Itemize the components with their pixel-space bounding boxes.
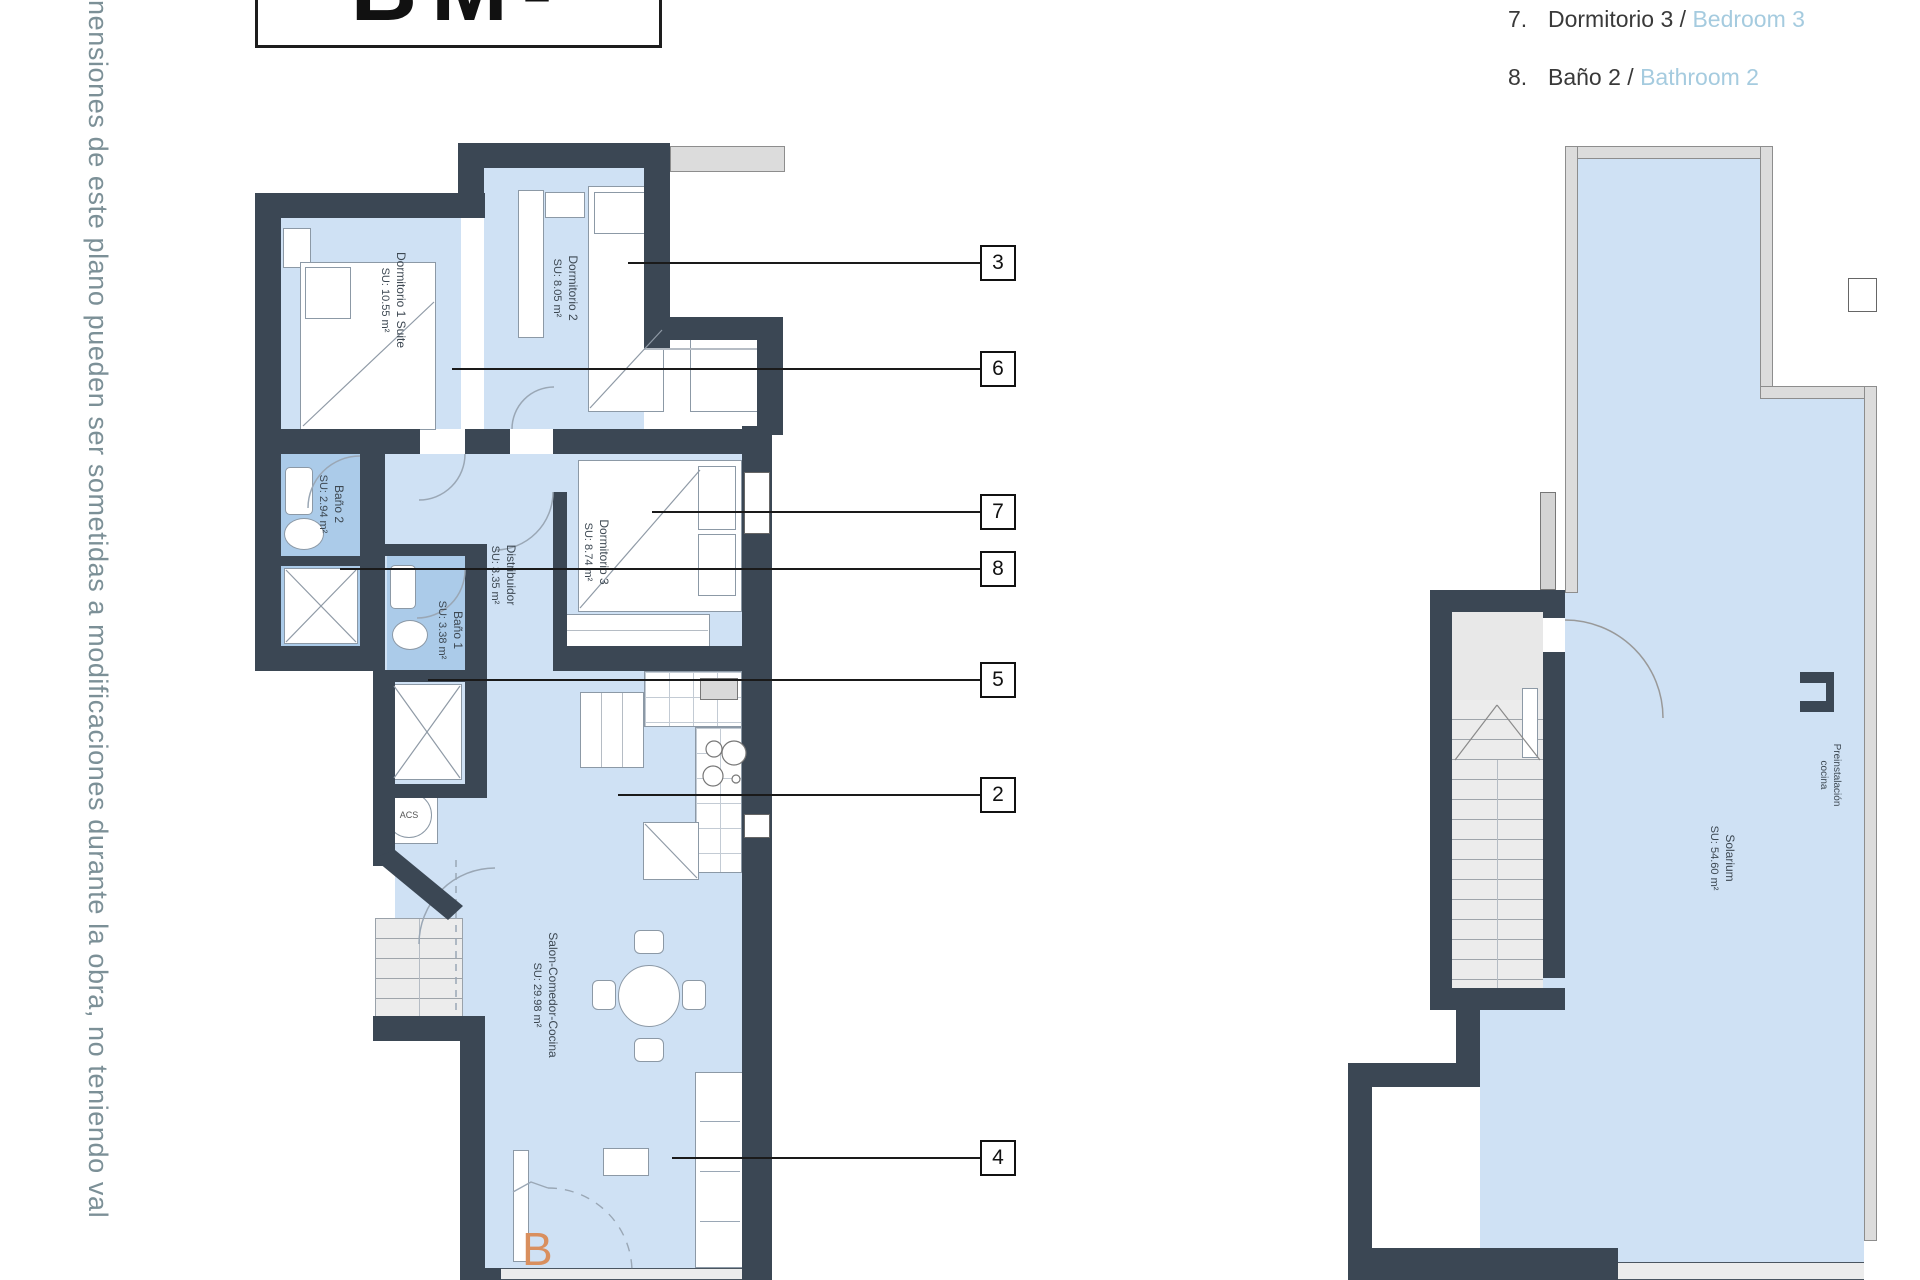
sink-bano2 (285, 467, 313, 515)
sofa-cushion-line (700, 1221, 740, 1222)
leader-line-5 (428, 679, 980, 681)
wall (460, 1041, 485, 1280)
wall (458, 143, 670, 168)
wardrobe-line (562, 630, 708, 631)
sink-bano1 (390, 565, 416, 609)
chair (634, 930, 664, 954)
wall (373, 1016, 485, 1041)
parapet (1565, 146, 1578, 593)
room-area: SU: 3.35 m² (488, 546, 502, 605)
callout-box-2: 2 (980, 777, 1016, 813)
callout-box-5: 5 (980, 662, 1016, 698)
room-area: SU: 8.05 m² (550, 259, 564, 318)
plan-title-box: BM-B (255, 0, 662, 48)
solarium-fill-left (1480, 978, 1565, 1280)
legend-number: 7. (1508, 6, 1548, 33)
room-name: Preinstalación (1830, 744, 1843, 807)
callout-number: 3 (992, 251, 1004, 275)
callout-box-4: 4 (980, 1140, 1016, 1176)
pillow (698, 534, 736, 596)
sofa (695, 1072, 745, 1268)
wall (255, 646, 385, 671)
parapet (1565, 146, 1773, 159)
stairs-divider (1497, 760, 1498, 988)
room-label-dorm1: Dormitorio 1 Suite SU: 10.55 m² (378, 252, 408, 348)
pillow (698, 466, 736, 530)
leader-line-4 (672, 1157, 980, 1159)
leader-line-7 (652, 511, 980, 513)
callout-number: 8 (992, 557, 1004, 581)
wall (1430, 590, 1452, 1010)
callout-number: 7 (992, 500, 1004, 524)
kitchen-appliance (700, 678, 738, 700)
wall (1348, 1248, 1618, 1280)
wall (385, 784, 487, 798)
room-name: cocina (1817, 761, 1830, 790)
pillow (305, 267, 351, 319)
room-label-dorm2: Dormitorio 2 SU: 8.05 m² (550, 255, 580, 320)
room-area: SU: 2.94 m² (316, 475, 330, 534)
parapet (1760, 146, 1773, 398)
parapet (1760, 386, 1877, 399)
chair (682, 980, 706, 1010)
wall (742, 426, 772, 1280)
solarium-fill-top (1578, 159, 1760, 398)
legend-en: Bedroom 3 (1692, 6, 1805, 32)
legend-es: Baño 2 / (1548, 64, 1640, 90)
chair (592, 980, 616, 1010)
callout-number: 2 (992, 783, 1004, 807)
plan-letter-b: B (522, 1222, 553, 1276)
kitchen-counter-right (695, 727, 742, 873)
leader-line-6 (452, 368, 980, 370)
window-dorm3 (744, 472, 770, 534)
coffee-table (603, 1148, 649, 1176)
parapet (1864, 386, 1877, 1241)
chair (634, 1038, 664, 1062)
legend-en: Bathroom 2 (1640, 64, 1759, 90)
room-name: Baño 2 (330, 485, 346, 523)
room-area: SU: 54.60 m² (1707, 826, 1721, 891)
sofa-cushion-line (700, 1121, 740, 1122)
callout-box-7: 7 (980, 494, 1016, 530)
wall (670, 317, 783, 340)
leader-line-3 (628, 262, 980, 264)
unit-divider (622, 693, 623, 767)
callout-box-3: 3 (980, 245, 1016, 281)
callout-box-8: 8 (980, 551, 1016, 587)
sofa-cushion-line (700, 1171, 740, 1172)
wall (281, 429, 420, 454)
room-area: SU: 29.98 m² (530, 963, 544, 1028)
wall (1430, 988, 1565, 1010)
room-label-bano1: Baño 1 SU: 3.38 m² (435, 601, 465, 660)
room-name: Dormitorio 2 (564, 255, 580, 320)
room-area: SU: 8.74 m² (581, 523, 595, 582)
room-label-solarium: Solarium SU: 54.60 m² (1707, 826, 1737, 891)
parapet-notch (1848, 278, 1877, 312)
door-leaf (1522, 688, 1538, 758)
dishwasher (643, 822, 699, 880)
room-name: Salon-Comedor-Cocina (544, 932, 560, 1057)
wall (255, 193, 485, 218)
room-area: SU: 3.38 m² (435, 601, 449, 660)
room-name: Solarium (1721, 834, 1737, 881)
shower-bano1 (392, 684, 462, 780)
wall (465, 429, 510, 454)
leader-line-8 (340, 568, 980, 570)
floorplan-page: { "side_note": "nensiones de este plano … (0, 0, 1920, 1280)
shower-bano2 (284, 568, 358, 644)
room-label-dorm3: Dormitorio 3 SU: 8.74 m² (581, 519, 611, 584)
wall (373, 671, 395, 866)
unit-divider (601, 693, 602, 767)
legend-item-bedroom3: 7.Dormitorio 3 / Bedroom 3 (1508, 6, 1805, 33)
dining-table (618, 965, 680, 1027)
callout-number: 5 (992, 668, 1004, 692)
toilet-bano1 (392, 620, 428, 650)
wall (553, 646, 742, 671)
room-label-preinstalacion: Preinstalación cocina (1817, 744, 1843, 807)
leader-line-2 (618, 794, 980, 796)
kitchen-tall-units (580, 692, 644, 768)
wardrobe-dorm3 (560, 614, 710, 648)
room-area: SU: 10.55 m² (378, 268, 392, 333)
wall (255, 193, 281, 658)
wall (1543, 590, 1565, 618)
wall (644, 143, 670, 348)
callout-box-6: 6 (980, 351, 1016, 387)
wardrobe-dorm2 (518, 190, 544, 338)
room-label-bano2: Baño 2 SU: 2.94 m² (316, 475, 346, 534)
wall (757, 340, 783, 435)
wall (281, 556, 385, 566)
legend-number: 8. (1508, 64, 1548, 91)
wall (553, 429, 742, 454)
wall (483, 1268, 501, 1280)
stair-landing (1452, 612, 1543, 700)
solarium-fill-main (1565, 398, 1864, 1241)
wall-strip (1540, 492, 1556, 590)
sill (1618, 1262, 1864, 1280)
wall (1543, 652, 1565, 978)
wall (360, 454, 385, 646)
wall (553, 492, 567, 658)
callout-number: 4 (992, 1146, 1004, 1170)
acs-label: ACS (400, 810, 419, 820)
callout-number: 6 (992, 357, 1004, 381)
legend-item-bathroom2: 8.Baño 2 / Bathroom 2 (1508, 64, 1759, 91)
room-name: Distribuidor (502, 545, 518, 606)
wall (1826, 672, 1834, 712)
plan-title-text: BM-B (351, 0, 567, 48)
room-name: Baño 1 (449, 611, 465, 649)
terrace-parapet (670, 146, 785, 172)
room-name: Dormitorio 1 Suite (392, 252, 408, 348)
legend-es: Dormitorio 3 / (1548, 6, 1692, 32)
room-name: Dormitorio 3 (595, 519, 611, 584)
window-kitchen (744, 814, 770, 838)
room-label-distribuidor: Distribuidor SU: 3.35 m² (488, 545, 518, 606)
nightstand (545, 192, 585, 218)
room-label-salon: Salon-Comedor-Cocina SU: 29.98 m² (530, 932, 560, 1057)
margin-disclaimer-text: nensiones de este plano pueden ser somet… (82, 0, 113, 1218)
